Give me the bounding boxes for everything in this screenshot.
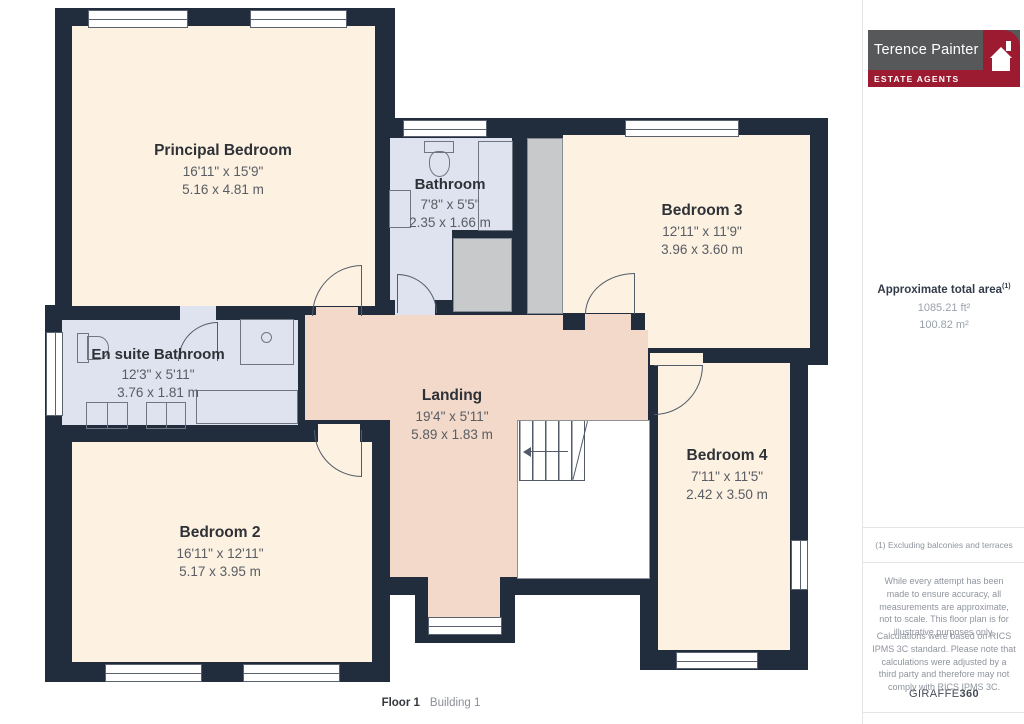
- room-dims-metric: 5.17 x 3.95 m: [176, 563, 263, 581]
- sidebar-bottom-divider: [863, 712, 1024, 713]
- room-landing-right: [563, 330, 648, 420]
- window-bedroom4-bottom: [676, 652, 758, 669]
- stairs-direction-arrow: [523, 447, 531, 457]
- window-principal-left: [88, 10, 188, 28]
- total-area-block: Approximate total area(1) 1085.21 ft² 10…: [863, 283, 1024, 334]
- window-bedroom2-left: [105, 664, 202, 682]
- room-name: Principal Bedroom: [154, 142, 292, 160]
- window-bathroom: [403, 120, 487, 137]
- window-principal-right: [250, 10, 347, 28]
- room-name: Bathroom: [409, 176, 491, 193]
- room-dims-imperial: 19'4" x 5'11": [411, 408, 493, 426]
- house-icon: [992, 57, 1010, 71]
- window-landing: [428, 617, 502, 635]
- logo-badge: [983, 30, 1020, 87]
- ensuite-shower-drain-icon: [261, 332, 272, 343]
- room-name: Bedroom 4: [686, 447, 768, 465]
- room-name: Bedroom 3: [661, 202, 743, 220]
- window-bedroom3: [625, 120, 739, 137]
- total-area-title: Approximate total area(1): [863, 283, 1024, 296]
- wardrobe-corridor: [527, 138, 563, 314]
- room-dims-metric: 2.35 x 1.66 m: [409, 214, 491, 232]
- bedroom3-door-gap: [585, 314, 631, 330]
- area-footnote: (1) Excluding balconies and terraces: [863, 527, 1024, 563]
- room-dims-metric: 5.89 x 1.83 m: [411, 426, 493, 444]
- room-dims-imperial: 7'8" x 5'5": [409, 196, 491, 214]
- brand-name: GIRAFFE: [909, 688, 959, 700]
- room-dims-imperial: 12'3" x 5'11": [91, 366, 224, 384]
- closet-below-bathroom: [453, 238, 512, 312]
- giraffe-brand: GIRAFFE360: [863, 688, 1024, 700]
- window-ensuite: [46, 332, 63, 416]
- agency-logo: Terence Painter ESTATE AGENTS: [868, 30, 1020, 88]
- sink-icon: [389, 190, 411, 228]
- building-name: Building 1: [430, 697, 481, 709]
- toilet-bowl-icon: [429, 151, 450, 177]
- disclaimer-calculations: Calculations were based on RICS IPMS 3C …: [863, 630, 1024, 694]
- vanity-cabinet-right-icon: [146, 402, 186, 429]
- bedroom4-label: Bedroom 4 7'11" x 11'5" 2.42 x 3.50 m: [686, 447, 768, 504]
- brand-number: 360: [959, 688, 979, 700]
- bedroom2-label: Bedroom 2 16'11" x 12'11" 5.17 x 3.95 m: [176, 524, 263, 581]
- room-dims-imperial: 16'11" x 15'9": [154, 163, 292, 181]
- room-name: Landing: [411, 387, 493, 405]
- total-area-title-text: Approximate total area: [877, 284, 1002, 296]
- total-area-ft: 1085.21 ft²: [863, 300, 1024, 317]
- room-dims-metric: 2.42 x 3.50 m: [686, 486, 768, 504]
- room-dims-metric: 3.76 x 1.81 m: [91, 384, 224, 402]
- room-name: Bedroom 2: [176, 524, 263, 542]
- landing-label: Landing 19'4" x 5'11" 5.89 x 1.83 m: [411, 387, 493, 444]
- ensuite-label: En suite Bathroom 12'3" x 5'11" 3.76 x 1…: [91, 346, 224, 402]
- logo-name: Terence Painter: [868, 42, 979, 58]
- principal-bedroom-label: Principal Bedroom 16'11" x 15'9" 5.16 x …: [154, 142, 292, 199]
- bathroom-label: Bathroom 7'8" x 5'5" 2.35 x 1.66 m: [409, 176, 491, 232]
- bedroom3-label: Bedroom 3 12'11" x 11'9" 3.96 x 3.60 m: [661, 202, 743, 259]
- room-dims-imperial: 12'11" x 11'9": [661, 223, 743, 241]
- room-dims-metric: 5.16 x 4.81 m: [154, 181, 292, 199]
- room-dims-imperial: 16'11" x 12'11": [176, 545, 263, 563]
- room-dims-imperial: 7'11" x 11'5": [686, 468, 768, 486]
- info-sidebar: Terence Painter ESTATE AGENTS Approximat…: [862, 0, 1024, 724]
- stairs-direction-line: [530, 451, 568, 452]
- room-landing-protrusion: [428, 577, 500, 617]
- total-area-superscript: (1): [1002, 283, 1011, 290]
- room-bedroom3-lower: [645, 313, 810, 348]
- floor-label: Floor 1 Building 1: [0, 697, 862, 709]
- vanity-cabinet-left-icon: [86, 402, 128, 429]
- total-area-m: 100.82 m²: [863, 317, 1024, 334]
- floor-plan: Principal Bedroom 16'11" x 15'9" 5.16 x …: [0, 0, 862, 724]
- window-bedroom4-right: [791, 540, 808, 590]
- logo-tagline: ESTATE AGENTS: [868, 74, 959, 84]
- floor-name: Floor 1: [382, 697, 420, 709]
- window-bedroom2-right: [243, 664, 340, 682]
- ensuite-door-gap: [180, 306, 216, 320]
- room-dims-metric: 3.96 x 3.60 m: [661, 241, 743, 259]
- room-name: En suite Bathroom: [91, 346, 224, 363]
